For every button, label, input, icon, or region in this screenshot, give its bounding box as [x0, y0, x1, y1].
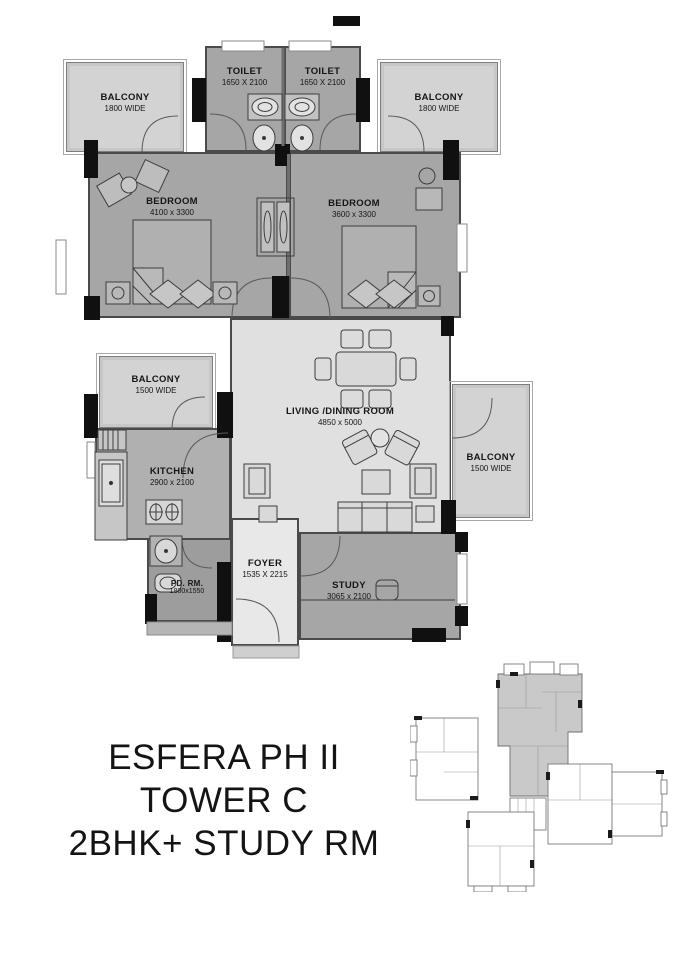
room-balcony-top-left — [66, 62, 184, 152]
key-plan — [410, 660, 668, 892]
room-balcony-right — [452, 384, 530, 518]
room-toilet-right — [284, 46, 361, 152]
room-living-dining — [230, 318, 451, 540]
room-bedroom-right — [289, 152, 461, 318]
key-plan-unit — [546, 764, 667, 844]
key-plan-unit — [410, 716, 478, 800]
title-line-3: 2BHK+ STUDY RM — [28, 822, 420, 865]
key-plan-unit — [466, 812, 534, 892]
service-strip — [147, 622, 232, 635]
room-kitchen — [95, 428, 231, 540]
entrance-landing — [233, 646, 299, 658]
room-balcony-kitchen — [99, 356, 213, 428]
floor-plan-page: TOILET 1650 X 2100 TOILET 1650 X 2100 BA… — [0, 0, 678, 960]
room-foyer — [231, 518, 299, 646]
room-study — [299, 532, 461, 640]
title-line-1: ESFERA PH II — [28, 736, 420, 779]
title-line-2: TOWER C — [28, 779, 420, 822]
room-toilet-left — [205, 46, 284, 152]
plan-title: ESFERA PH II TOWER C 2BHK+ STUDY RM — [28, 736, 420, 865]
room-bedroom-left — [88, 152, 288, 318]
room-powder-room — [147, 538, 232, 622]
room-balcony-top-right — [380, 62, 498, 152]
